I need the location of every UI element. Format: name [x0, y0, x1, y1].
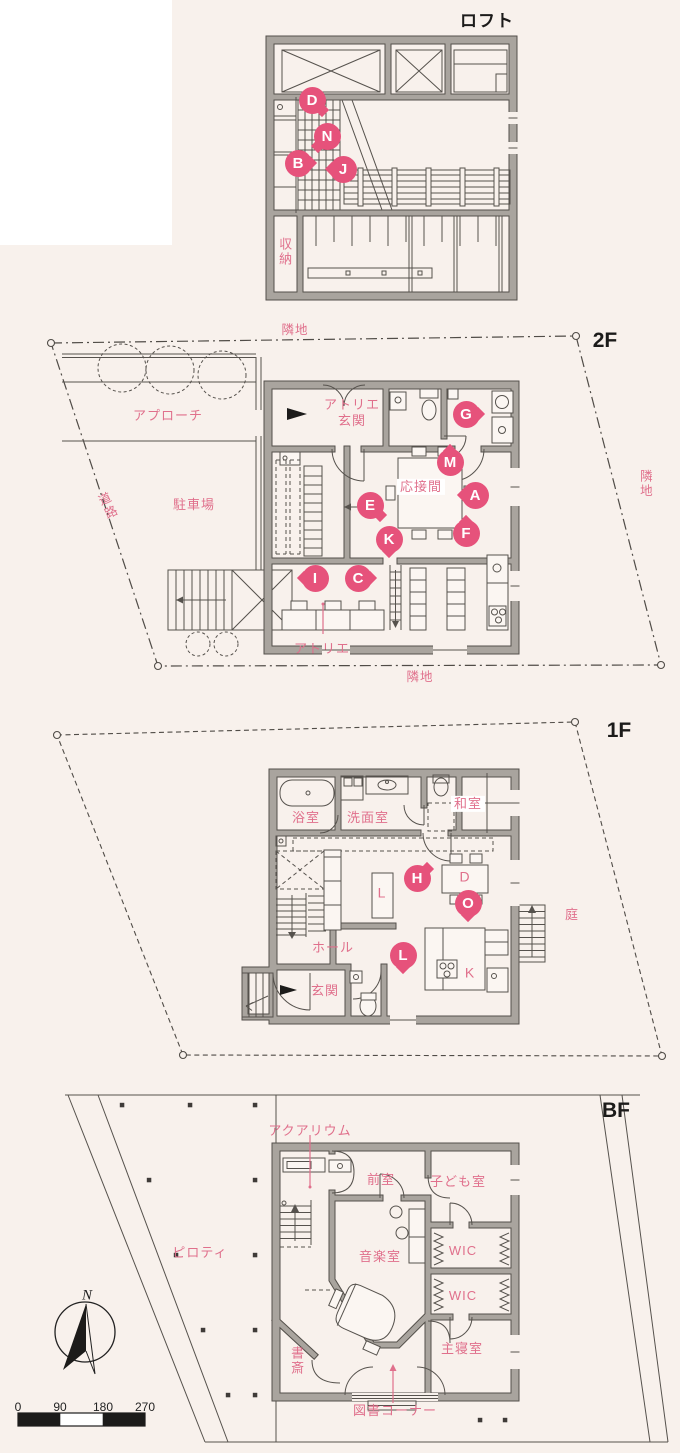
f2-fixtures	[280, 389, 513, 630]
marker-F-2f: F	[453, 520, 480, 547]
marker-M-2f: M	[437, 449, 464, 476]
marker-letter: J	[339, 161, 347, 178]
label-washroom: 洗面室	[347, 810, 389, 826]
marker-N-loft: N	[314, 123, 341, 150]
marker-G-2f: G	[453, 401, 480, 428]
north-label: N	[82, 1288, 92, 1305]
marker-letter: O	[462, 895, 474, 912]
entry-direction-arrow-2f	[287, 408, 307, 420]
label-atelier-entrance-line1: アトリエ	[324, 397, 380, 413]
label-kids-room: 子ども室	[430, 1174, 486, 1190]
label-kitchen: K	[465, 964, 475, 982]
marker-letter: A	[470, 487, 481, 504]
marker-B-loft: B	[285, 150, 312, 177]
label-garden: 庭	[565, 907, 579, 923]
label-anteroom: 前室	[367, 1172, 395, 1188]
label-adjacent-bottom: 隣地	[406, 670, 433, 686]
compass-rose	[55, 1302, 115, 1374]
marker-K-2f: K	[376, 526, 403, 553]
bf-plan-drawing	[0, 1085, 680, 1453]
f1-plan-drawing	[40, 705, 680, 1065]
label-storage: 収納	[276, 237, 292, 267]
label-piloti: ピロティ	[172, 1245, 227, 1261]
bf-fixtures	[283, 1158, 425, 1356]
marker-E-2f: E	[357, 492, 384, 519]
f2-title: 2F	[593, 329, 618, 353]
marker-letter: E	[365, 497, 375, 514]
label-wic-upper: WIC	[449, 1243, 477, 1259]
label-library-corner: 図書コーナー	[353, 1403, 437, 1419]
label-bathroom: 浴室	[292, 810, 320, 826]
marker-D-loft: D	[299, 87, 326, 114]
floorplan-page: ロフト 収納 2F 隣地 隣地 隣地 道路 アプローチ 駐車場 アトリエ玄関 応…	[0, 0, 680, 1453]
label-study: 書斎	[288, 1346, 304, 1376]
label-parking: 駐車場	[173, 497, 215, 513]
marker-I-2f: I	[302, 565, 329, 592]
label-atelier: アトリエ	[294, 641, 350, 657]
label-hall: ホール	[312, 940, 354, 956]
marker-letter: L	[398, 947, 407, 964]
label-aquarium: アクアリウム	[268, 1123, 351, 1139]
marker-letter: I	[313, 570, 317, 587]
label-atelier-entrance: アトリエ玄関	[324, 397, 380, 430]
label-music-room: 音楽室	[359, 1249, 401, 1265]
label-atelier-entrance-line2: 玄関	[324, 413, 380, 429]
scale-bar	[18, 1413, 145, 1426]
bf-title: BF	[602, 1099, 630, 1123]
marker-letter: H	[412, 870, 423, 887]
scale-tick-270: 270	[135, 1400, 155, 1414]
marker-H-1f: H	[404, 865, 431, 892]
entry-direction-arrow-1f	[280, 985, 297, 995]
label-adjacent-top: 隣地	[281, 323, 308, 339]
label-adjacent-right: 隣地	[636, 470, 652, 499]
label-approach: アプローチ	[133, 408, 203, 424]
marker-letter: F	[461, 525, 470, 542]
marker-letter: K	[384, 531, 395, 548]
marker-letter: B	[293, 155, 304, 172]
marker-A-2f: A	[462, 482, 489, 509]
marker-letter: N	[322, 128, 333, 145]
label-wic-lower: WIC	[449, 1288, 477, 1304]
loft-title: ロフト	[460, 7, 514, 32]
marker-letter: G	[460, 406, 472, 423]
marker-J-loft: J	[330, 156, 357, 183]
marker-L-1f: L	[390, 942, 417, 969]
f1-title: 1F	[607, 719, 632, 743]
label-reception-room: 応接間	[397, 479, 445, 495]
bf-stairs	[280, 1200, 311, 1245]
marker-C-2f: C	[345, 565, 372, 592]
label-dining: D	[459, 868, 470, 886]
marker-letter: C	[353, 570, 364, 587]
label-entrance: 玄関	[311, 983, 339, 999]
label-living: L	[378, 884, 387, 902]
marker-letter: M	[444, 454, 457, 471]
scale-tick-0: 0	[15, 1400, 22, 1414]
label-master-bedroom: 主寝室	[441, 1341, 483, 1357]
scale-tick-180: 180	[93, 1400, 113, 1414]
scale-tick-90: 90	[53, 1400, 66, 1414]
marker-letter: D	[307, 92, 318, 109]
marker-O-1f: O	[455, 890, 482, 917]
label-japanese-room: 和室	[451, 796, 485, 812]
top-left-white-panel	[0, 0, 172, 245]
